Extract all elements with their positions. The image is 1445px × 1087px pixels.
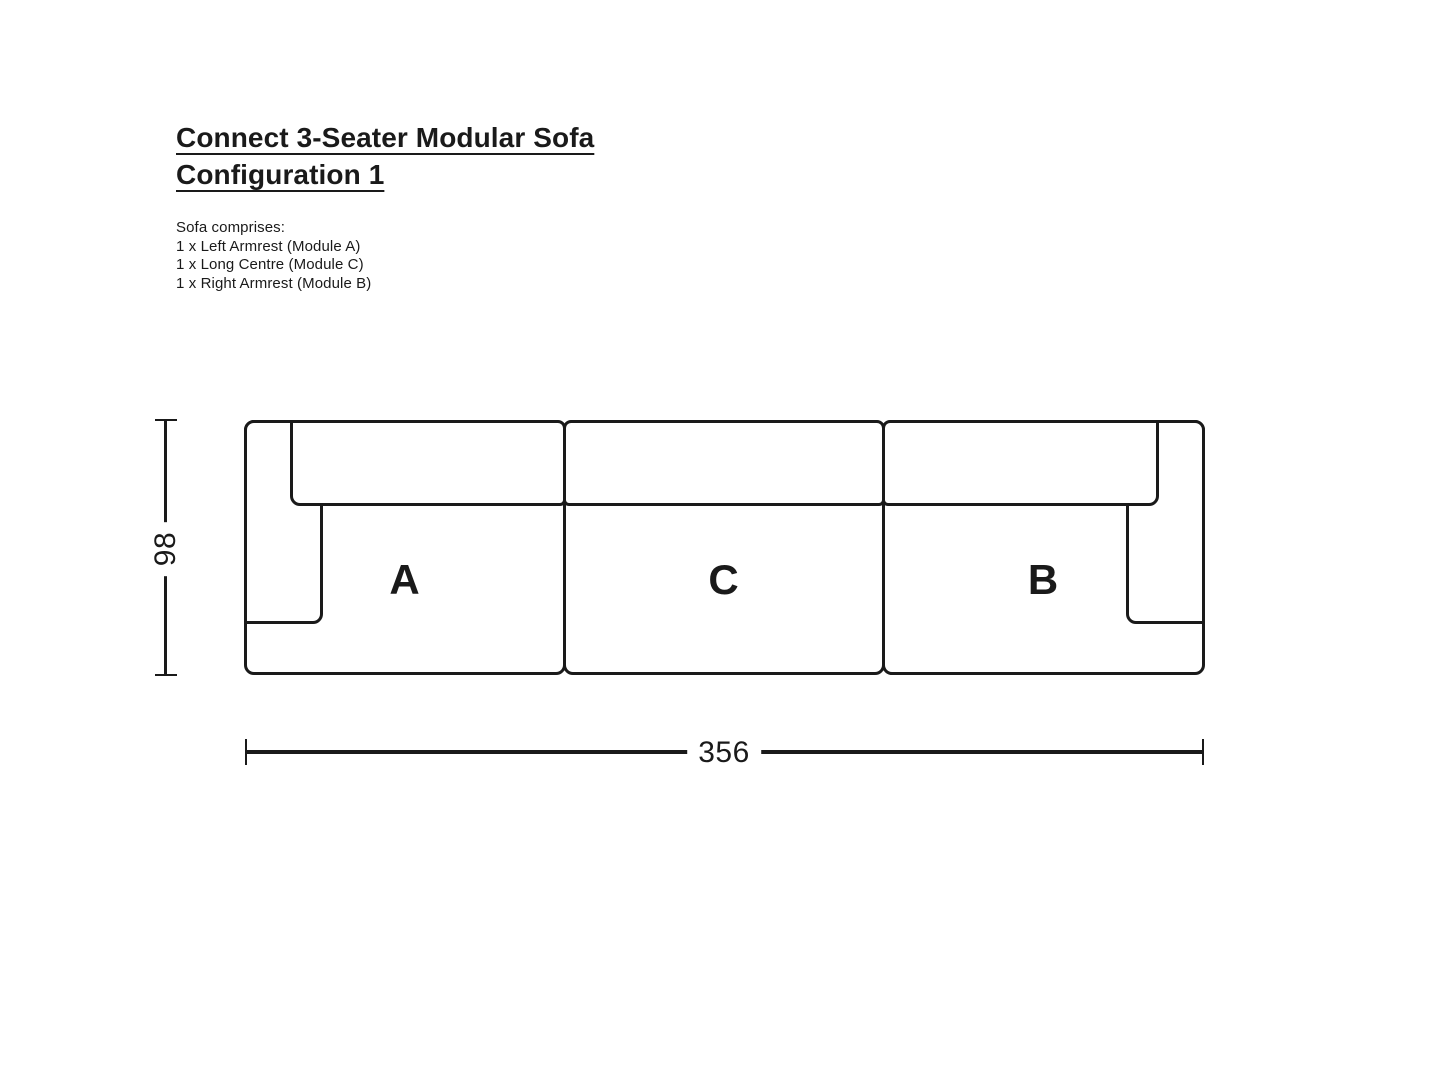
width-dimension-tick-right [1202,739,1204,765]
module-c-long-centre: C [563,420,885,675]
depth-dimension-tick-top [155,419,177,421]
width-dimension-value: 356 [687,736,761,770]
module-a-left-armrest: A [244,420,566,675]
depth-dimension-tick-bottom [155,674,177,676]
sofa-plan-diagram: 98 A C B 356 [0,0,1445,1087]
module-a-backrest-shape [290,420,566,506]
module-b-label: B [885,556,1202,604]
module-b-right-armrest: B [882,420,1205,675]
module-c-label: C [566,556,882,604]
module-b-backrest-shape [882,420,1159,506]
module-c-backrest-shape [563,420,885,506]
module-a-label: A [247,556,563,604]
sofa-spec-page: Connect 3-Seater Modular SofaConfigurati… [0,0,1445,1087]
sofa-outline: A C B [244,420,1205,675]
depth-dimension-value: 98 [149,522,183,576]
width-dimension-tick-left [245,739,247,765]
